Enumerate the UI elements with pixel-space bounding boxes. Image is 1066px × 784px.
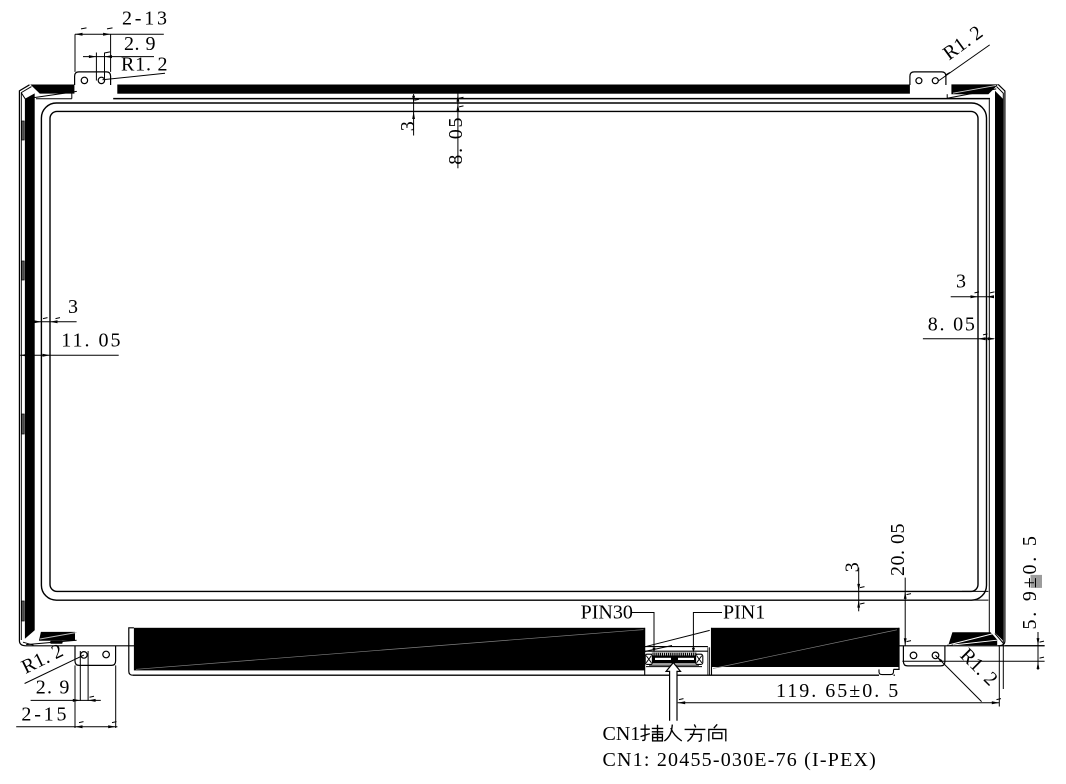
svg-text:CN1: 20455-030E-76 (I-PEX): CN1: 20455-030E-76 (I-PEX) <box>603 749 878 771</box>
svg-text:3: 3 <box>956 270 966 292</box>
svg-text:11. 05: 11. 05 <box>61 330 122 352</box>
svg-text:3: 3 <box>397 121 419 131</box>
svg-text:R1. 2: R1. 2 <box>121 54 168 76</box>
svg-text:3: 3 <box>68 296 78 318</box>
svg-text:2-15: 2-15 <box>21 704 69 726</box>
svg-text:119. 65±0. 5: 119. 65±0. 5 <box>776 680 900 702</box>
svg-text:8. 05: 8. 05 <box>445 116 467 165</box>
svg-text:2. 9: 2. 9 <box>124 33 156 55</box>
svg-text:2-13: 2-13 <box>122 8 170 30</box>
svg-text:CN1: CN1 <box>603 723 641 745</box>
svg-text:8. 05: 8. 05 <box>928 313 977 335</box>
svg-text:PIN1: PIN1 <box>723 601 765 623</box>
svg-text:PIN30: PIN30 <box>581 601 633 623</box>
svg-text:5. 9±0. 5: 5. 9±0. 5 <box>1019 533 1041 629</box>
svg-text:3: 3 <box>842 562 864 572</box>
svg-text:2. 9: 2. 9 <box>36 677 71 699</box>
svg-text:20. 05: 20. 05 <box>887 523 909 576</box>
